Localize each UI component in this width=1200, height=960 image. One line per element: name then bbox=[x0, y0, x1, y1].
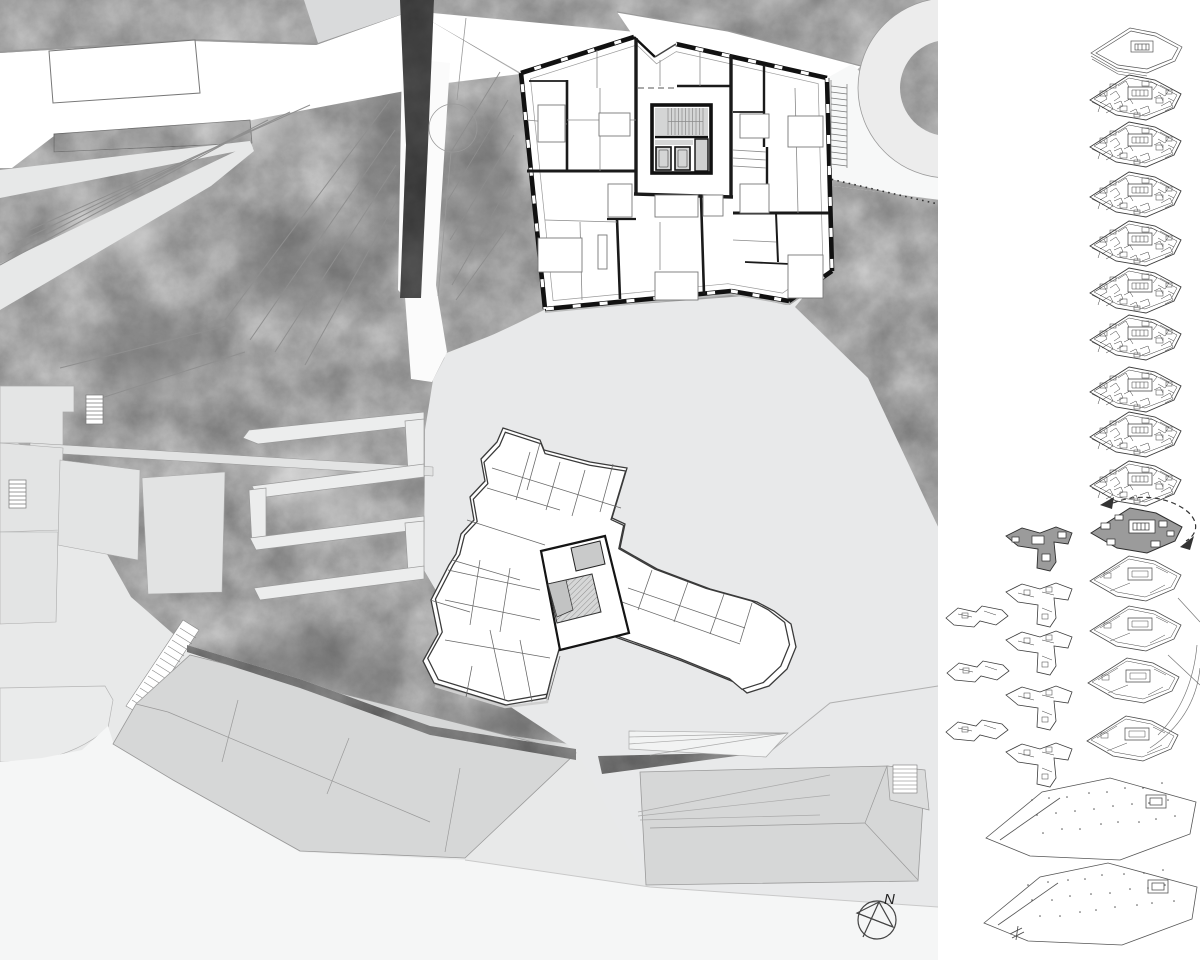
svg-text:N: N bbox=[884, 891, 895, 908]
